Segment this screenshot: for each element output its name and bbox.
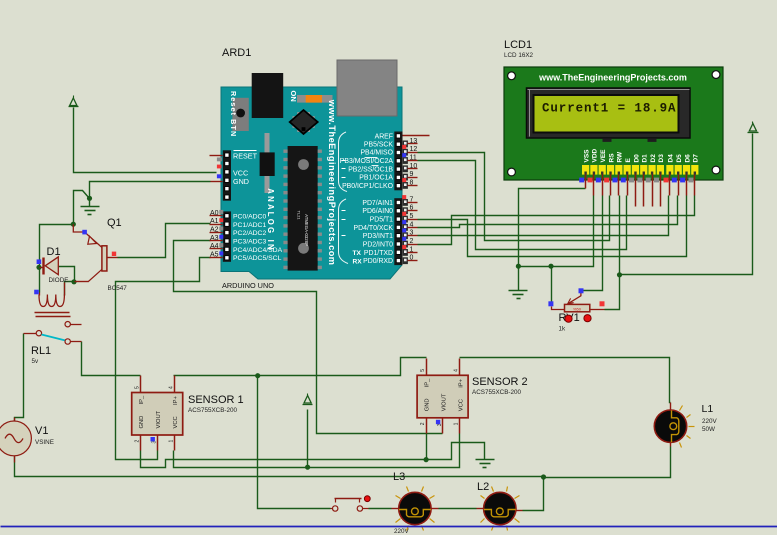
- svg-text:V1: V1: [35, 425, 48, 437]
- svg-text:ON: ON: [289, 91, 298, 102]
- svg-text:PC4/ADC4/SDA: PC4/ADC4/SDA: [233, 247, 283, 254]
- svg-text:ACS755XCB-200: ACS755XCB-200: [472, 389, 522, 396]
- svg-text:1k: 1k: [559, 326, 567, 333]
- svg-text:D4: D4: [668, 154, 675, 163]
- svg-text:1: 1: [168, 440, 174, 443]
- svg-text:RESET: RESET: [233, 152, 258, 161]
- svg-text:DIODE: DIODE: [49, 277, 69, 284]
- svg-text:ARDUINO UNO: ARDUINO UNO: [222, 281, 274, 290]
- svg-text:D0: D0: [633, 154, 640, 163]
- svg-text:A3: A3: [210, 235, 219, 242]
- svg-text:PD2/INT0: PD2/INT0: [363, 242, 393, 249]
- svg-text:2: 2: [410, 238, 414, 245]
- svg-text:PB4/MISO: PB4/MISO: [360, 150, 393, 157]
- svg-text:PD1/TXD: PD1/TXD: [364, 250, 393, 257]
- svg-text:LCD1: LCD1: [504, 39, 532, 51]
- svg-text:PB2/SS/OC1B: PB2/SS/OC1B: [348, 166, 393, 173]
- svg-text:5: 5: [420, 369, 426, 372]
- svg-text:PC3/ADC3: PC3/ADC3: [233, 239, 266, 246]
- svg-text:PB5/SCK: PB5/SCK: [364, 141, 394, 148]
- svg-text:ANALOG IN: ANALOG IN: [266, 188, 275, 252]
- svg-text:PB3/MOSI/OC2A: PB3/MOSI/OC2A: [340, 158, 394, 165]
- svg-text:IP+: IP+: [458, 378, 464, 387]
- svg-text:PD7/AIN1: PD7/AIN1: [362, 200, 393, 207]
- svg-text:SENSOR 1: SENSOR 1: [188, 394, 244, 406]
- svg-text:2: 2: [420, 422, 426, 425]
- svg-text:Reset BTN: Reset BTN: [229, 91, 238, 137]
- svg-text:D1: D1: [642, 154, 649, 163]
- svg-text:PC0/ADC0: PC0/ADC0: [233, 214, 266, 221]
- svg-text:D2: D2: [650, 154, 657, 163]
- svg-text:A4: A4: [210, 243, 219, 250]
- svg-text:D7: D7: [693, 154, 700, 163]
- svg-text:13: 13: [410, 138, 418, 145]
- svg-text:A2: A2: [210, 227, 219, 234]
- svg-text:VCC: VCC: [173, 416, 179, 428]
- svg-text:ACS755XCB-200: ACS755XCB-200: [188, 407, 238, 414]
- svg-text:PC1/ADC1: PC1/ADC1: [233, 222, 266, 229]
- svg-text:TL21: TL21: [297, 210, 302, 220]
- svg-text:L1: L1: [702, 403, 714, 415]
- svg-text:PD0/RXD: PD0/RXD: [363, 258, 393, 265]
- svg-text:www.TheEngineeringProjects.com: www.TheEngineeringProjects.com: [538, 73, 687, 83]
- svg-text:5: 5: [135, 386, 141, 389]
- svg-text:ARD1: ARD1: [222, 47, 251, 59]
- svg-text:IP_: IP_: [425, 378, 431, 387]
- svg-text:PC5/ADC5/SCL: PC5/ADC5/SCL: [233, 255, 282, 262]
- svg-text:11: 11: [410, 155, 417, 162]
- svg-text:AREF: AREF: [375, 133, 393, 140]
- svg-text:5v: 5v: [32, 358, 40, 365]
- svg-text:E: E: [625, 158, 632, 163]
- svg-text:VEE: VEE: [600, 149, 607, 163]
- svg-text:6: 6: [410, 205, 414, 212]
- svg-text:A5: A5: [210, 251, 219, 258]
- svg-text:12: 12: [410, 146, 418, 153]
- svg-text:PD6/AIN0: PD6/AIN0: [362, 208, 393, 215]
- svg-text:4: 4: [168, 386, 174, 389]
- svg-text:PD4/T0/XCK: PD4/T0/XCK: [354, 225, 394, 232]
- svg-text:4: 4: [410, 221, 414, 228]
- svg-text:VIOUT: VIOUT: [442, 393, 448, 411]
- svg-text:L3: L3: [393, 471, 405, 483]
- svg-text:BC547: BC547: [108, 285, 128, 292]
- svg-text:A0: A0: [210, 210, 219, 217]
- svg-text:0: 0: [410, 255, 414, 262]
- svg-text:PD5/T1: PD5/T1: [370, 217, 394, 224]
- svg-text:A1: A1: [210, 218, 219, 225]
- svg-text:GND: GND: [139, 416, 145, 429]
- svg-text:TX: TX: [353, 250, 362, 257]
- svg-text:1: 1: [410, 246, 414, 253]
- svg-text:1: 1: [454, 422, 460, 425]
- svg-text:GND: GND: [233, 177, 249, 186]
- svg-text:8: 8: [410, 179, 414, 186]
- svg-text:D3: D3: [658, 154, 665, 163]
- svg-text:RX: RX: [353, 258, 363, 265]
- svg-text:Current1 = 18.9A: Current1 = 18.9A: [542, 102, 676, 116]
- svg-text:9: 9: [410, 171, 414, 178]
- svg-text:220V: 220V: [702, 418, 718, 425]
- svg-text:PD3/INT1: PD3/INT1: [363, 233, 393, 240]
- svg-text:VCC: VCC: [458, 399, 464, 411]
- svg-text:SENSOR 2: SENSOR 2: [472, 376, 528, 388]
- svg-text:ATMEGA-0328P: ATMEGA-0328P: [304, 214, 309, 246]
- svg-text:%50: %50: [573, 306, 582, 311]
- svg-text:www.TheEngineeringProjects.com: www.TheEngineeringProjects.com: [327, 99, 337, 266]
- svg-text:L2: L2: [477, 481, 489, 493]
- svg-text:RW: RW: [617, 151, 624, 163]
- svg-text:50W: 50W: [702, 426, 715, 433]
- svg-text:D1: D1: [47, 246, 61, 258]
- svg-text:LCD 16X2: LCD 16X2: [504, 52, 534, 59]
- svg-text:3: 3: [410, 230, 414, 237]
- svg-text:IP+: IP+: [173, 396, 179, 405]
- svg-text:PC2/ADC2: PC2/ADC2: [233, 230, 266, 237]
- svg-text:VDD: VDD: [592, 148, 599, 162]
- svg-text:IP_: IP_: [139, 395, 145, 404]
- svg-text:VSINE: VSINE: [35, 439, 54, 446]
- svg-text:4: 4: [454, 369, 460, 372]
- svg-text:PB1/OC1A: PB1/OC1A: [359, 175, 393, 182]
- svg-text:Q1: Q1: [107, 217, 122, 229]
- svg-text:PB0/ICP1/CLKO: PB0/ICP1/CLKO: [342, 183, 394, 190]
- svg-text:2: 2: [135, 440, 141, 443]
- svg-text:10: 10: [410, 163, 418, 170]
- svg-text:RS: RS: [608, 153, 615, 163]
- svg-text:RL1: RL1: [31, 345, 51, 357]
- svg-text:D6: D6: [684, 154, 691, 163]
- svg-text:7: 7: [410, 196, 414, 203]
- svg-text:VIOUT: VIOUT: [156, 410, 162, 428]
- svg-text:D5: D5: [676, 154, 683, 163]
- svg-text:5: 5: [410, 213, 414, 220]
- svg-text:VSS: VSS: [583, 149, 590, 163]
- svg-text:220V: 220V: [394, 528, 410, 535]
- svg-text:GND: GND: [425, 398, 431, 411]
